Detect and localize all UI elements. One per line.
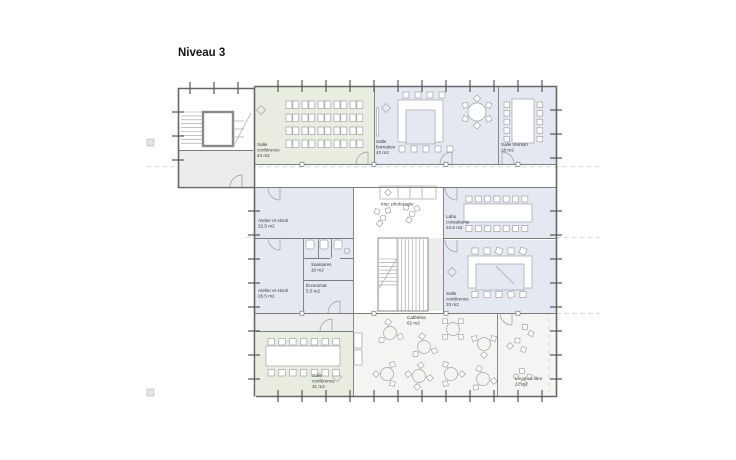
chair-icon xyxy=(466,196,472,202)
chair-icon xyxy=(443,334,448,339)
chair-icon xyxy=(325,114,331,122)
chair-icon xyxy=(309,101,315,109)
chair-icon xyxy=(513,196,519,202)
chair-icon xyxy=(302,140,308,148)
chair-icon xyxy=(508,248,514,254)
toilet-icon xyxy=(306,240,314,249)
chair-icon xyxy=(309,127,315,135)
toilet-icon xyxy=(334,240,342,249)
chair-icon xyxy=(286,101,292,109)
chair-icon xyxy=(322,339,329,346)
chair-icon xyxy=(341,140,347,148)
chair-icon xyxy=(537,111,543,117)
wardrobe xyxy=(354,333,362,348)
chair-icon xyxy=(443,319,448,324)
chair-icon xyxy=(520,291,526,297)
chair-icon xyxy=(334,114,340,122)
chair-icon xyxy=(472,336,478,342)
toilet-icon xyxy=(320,240,328,249)
chair-icon xyxy=(447,146,453,152)
chair-icon xyxy=(268,339,275,346)
chair-icon xyxy=(350,114,356,122)
chair-icon xyxy=(415,92,421,98)
central-staircase xyxy=(378,238,428,311)
column-marker xyxy=(516,311,520,315)
chair-icon xyxy=(466,226,472,232)
chair-icon xyxy=(318,114,324,122)
chair-icon xyxy=(300,370,307,377)
chair-icon xyxy=(350,127,356,135)
chair-icon xyxy=(427,92,433,98)
chair-icon xyxy=(537,102,543,108)
chair-icon xyxy=(475,196,481,202)
side-table xyxy=(409,211,415,217)
chair-icon xyxy=(334,101,340,109)
chair-icon xyxy=(472,248,478,254)
chair-icon xyxy=(458,334,463,339)
chair-icon xyxy=(309,140,315,148)
chair-icon xyxy=(333,370,340,377)
chair-icon xyxy=(293,101,299,109)
chair-icon xyxy=(443,362,449,368)
chair-icon xyxy=(279,370,286,377)
chair-icon xyxy=(485,196,491,202)
chair-icon xyxy=(423,146,429,152)
u-table-notch xyxy=(476,264,524,290)
chair-icon xyxy=(302,101,308,109)
meeting-table xyxy=(464,204,532,222)
chair-icon xyxy=(376,220,383,227)
chair-icon xyxy=(300,339,307,346)
stair-landing-strip xyxy=(428,238,443,311)
column-marker xyxy=(372,162,376,166)
chair-icon xyxy=(503,226,509,232)
chair-icon xyxy=(504,111,510,117)
side-table xyxy=(380,215,386,221)
column-marker xyxy=(444,311,448,315)
room-salle-conference-44 xyxy=(255,87,374,164)
chair-icon xyxy=(491,336,497,342)
chair-icon xyxy=(522,226,528,232)
chair-icon xyxy=(302,127,308,135)
chair-icon xyxy=(537,128,543,134)
chair-icon xyxy=(311,339,318,346)
column-marker xyxy=(516,162,520,166)
column-marker xyxy=(372,311,376,315)
chair-icon xyxy=(357,140,363,148)
chair-icon xyxy=(385,208,391,214)
chair-icon xyxy=(411,146,417,152)
chair-icon xyxy=(537,119,543,125)
chair-icon xyxy=(350,140,356,148)
chair-icon xyxy=(334,140,340,148)
chair-icon xyxy=(504,102,510,108)
chair-icon xyxy=(414,205,420,211)
chair-icon xyxy=(325,140,331,148)
chair-icon xyxy=(318,127,324,135)
chair-icon xyxy=(390,362,396,368)
chair-icon xyxy=(484,291,490,297)
chair-icon xyxy=(522,196,528,202)
chair-icon xyxy=(458,319,463,324)
chair-icon xyxy=(293,114,299,122)
room-atelier-2 xyxy=(255,238,303,313)
chair-icon xyxy=(318,140,324,148)
stair-diagonal xyxy=(233,113,251,147)
chair-icon xyxy=(472,291,478,297)
chair-icon xyxy=(462,102,468,108)
chair-icon xyxy=(374,208,380,214)
chair-icon xyxy=(334,127,340,135)
chair-icon xyxy=(341,127,347,135)
chair-icon xyxy=(390,381,396,387)
chair-icon xyxy=(357,101,363,109)
chair-icon xyxy=(494,196,500,202)
u-table-notch xyxy=(406,110,435,144)
chair-icon xyxy=(443,381,449,387)
chair-icon xyxy=(357,114,363,122)
chair-icon xyxy=(379,337,384,342)
wardrobe xyxy=(354,350,362,365)
chair-icon xyxy=(293,140,299,148)
chair-icon xyxy=(286,140,292,148)
chair-icon xyxy=(513,226,519,232)
chair-icon xyxy=(318,101,324,109)
chair-icon xyxy=(290,370,297,377)
round-table xyxy=(468,103,486,121)
elevator-shaft xyxy=(203,112,233,146)
chair-icon xyxy=(504,128,510,134)
floor-plan-page: Niveau 3 xyxy=(0,0,736,460)
chair-icon xyxy=(473,385,478,390)
chair-icon xyxy=(341,101,347,109)
chair-icon xyxy=(399,146,405,152)
chair-icon xyxy=(413,351,418,356)
chair-icon xyxy=(504,119,510,125)
meeting-table xyxy=(512,99,534,143)
grid-marker xyxy=(147,389,154,396)
floor-plan: Salle conférence 44 m2 Salle formation 4… xyxy=(0,0,736,460)
chair-icon xyxy=(494,226,500,232)
chair-icon xyxy=(293,127,299,135)
chair-icon xyxy=(486,116,492,122)
chair-icon xyxy=(350,101,356,109)
room-label-imp-photocopie: Imp. photocopie xyxy=(381,202,414,207)
chair-icon xyxy=(435,146,441,152)
chair-icon xyxy=(496,291,502,297)
chair-icon xyxy=(523,325,528,330)
chair-icon xyxy=(325,101,331,109)
column-marker xyxy=(300,162,304,166)
chair-icon xyxy=(286,114,292,122)
chair-icon xyxy=(537,136,543,142)
chair-icon xyxy=(333,339,340,346)
column-marker xyxy=(300,311,304,315)
chair-icon xyxy=(286,127,292,135)
chair-icon xyxy=(484,248,490,254)
corridor-strip xyxy=(255,313,353,331)
chair-icon xyxy=(475,226,481,232)
room-cafeteria xyxy=(353,313,497,396)
chair-icon xyxy=(268,370,275,377)
chair-icon xyxy=(462,116,468,122)
chair-icon xyxy=(520,369,525,374)
chair-icon xyxy=(439,92,445,98)
chair-icon xyxy=(486,102,492,108)
room-fills xyxy=(179,87,556,396)
grid-marker xyxy=(147,139,154,146)
conference-table xyxy=(266,346,340,366)
chair-icon xyxy=(279,339,286,346)
chair-icon xyxy=(302,114,308,122)
column-marker xyxy=(444,162,448,166)
chair-icon xyxy=(325,127,331,135)
chair-icon xyxy=(357,127,363,135)
room-atelier-1 xyxy=(255,188,353,238)
whiteboard xyxy=(377,108,379,136)
chair-icon xyxy=(309,114,315,122)
chair-icon xyxy=(290,339,297,346)
chair-icon xyxy=(485,226,491,232)
chair-icon xyxy=(341,114,347,122)
chair-icon xyxy=(515,338,520,343)
chair-icon xyxy=(503,196,509,202)
chair-icon xyxy=(403,92,409,98)
chair-icon xyxy=(406,217,413,224)
